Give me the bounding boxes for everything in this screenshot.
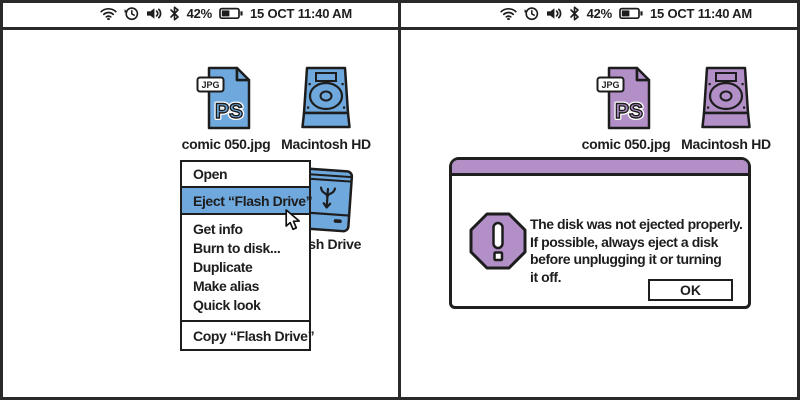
macintosh-hd-icon[interactable] [699, 66, 753, 135]
menu-bar-left: 42% 15 OCT 11:40 AM [0, 0, 400, 30]
jpg-file-icon[interactable]: JPG PS PS [596, 66, 652, 135]
macintosh-hd-label[interactable]: Macintosh HD [266, 136, 386, 152]
macintosh-hd-icon[interactable] [299, 66, 353, 135]
svg-text:PS: PS [215, 100, 243, 123]
alert-message-line: If possible, always eject a disk [530, 234, 742, 252]
recents-clock-icon [124, 6, 139, 21]
menu-item-burn-to-disk[interactable]: Burn to disk... [182, 239, 309, 258]
volume-icon [146, 7, 162, 20]
alert-message: The disk was not ejected properly. If po… [530, 216, 742, 286]
comic-two-panel-screenshot: 42% 15 OCT 11:40 AM JPG PS PS [0, 0, 800, 400]
desktop-right: JPG PS PS comic 050.jpg [400, 33, 800, 400]
volume-icon [546, 7, 562, 20]
menu-item-make-alias[interactable]: Make alias [182, 277, 309, 296]
menu-item-duplicate[interactable]: Duplicate [182, 258, 309, 277]
panel-left: 42% 15 OCT 11:40 AM JPG PS PS [0, 0, 400, 400]
recents-clock-icon [524, 6, 539, 21]
desktop-left: JPG PS PS comic 050.jpg [0, 33, 400, 400]
battery-percent-label: 42% [587, 6, 612, 21]
bluetooth-icon [569, 6, 580, 21]
clock-time-label: 15 OCT 11:40 AM [250, 6, 352, 21]
svg-text:JPG: JPG [201, 80, 219, 90]
bluetooth-icon [169, 6, 180, 21]
alert-body: The disk was not ejected properly. If po… [452, 176, 748, 303]
clock-time-label: 15 OCT 11:40 AM [650, 6, 752, 21]
svg-text:PS: PS [615, 100, 643, 123]
macintosh-hd-label[interactable]: Macintosh HD [666, 136, 786, 152]
battery-icon [219, 7, 243, 20]
context-menu: Open Eject “Flash Drive” Get info Burn t… [180, 160, 311, 351]
jpg-file-icon[interactable]: JPG PS PS [196, 66, 252, 135]
battery-percent-label: 42% [187, 6, 212, 21]
disk-eject-alert-dialog: The disk was not ejected properly. If po… [449, 157, 751, 309]
battery-icon [619, 7, 643, 20]
menu-bar-right: 42% 15 OCT 11:40 AM [400, 0, 800, 30]
menu-item-open[interactable]: Open [182, 162, 309, 188]
wifi-icon [100, 7, 117, 20]
wifi-icon [500, 7, 517, 20]
svg-text:JPG: JPG [601, 80, 619, 90]
panel-right: 42% 15 OCT 11:40 AM JPG PS PS [400, 0, 800, 400]
menu-item-copy-flash-drive[interactable]: Copy “Flash Drive” [182, 320, 309, 349]
menu-item-quick-look[interactable]: Quick look [182, 296, 309, 315]
alert-message-line: The disk was not ejected properly. [530, 216, 742, 234]
panel-divider [398, 0, 401, 400]
ok-button[interactable]: OK [648, 279, 733, 301]
warning-octagon-icon [469, 212, 527, 275]
alert-message-line: before unplugging it or turning [530, 251, 742, 269]
alert-title-bar[interactable] [452, 160, 748, 176]
mouse-cursor-icon [285, 209, 303, 238]
